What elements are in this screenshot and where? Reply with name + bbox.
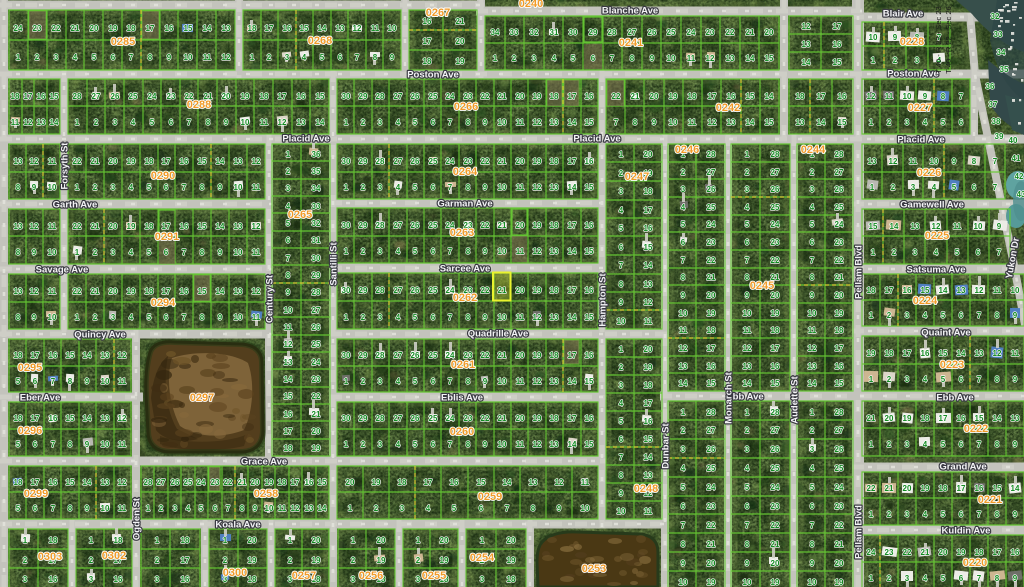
svg-text:7: 7 (977, 311, 982, 320)
svg-text:11: 11 (118, 504, 127, 513)
svg-text:16: 16 (1011, 548, 1020, 557)
svg-text:11: 11 (11, 118, 20, 127)
svg-text:22: 22 (612, 92, 621, 101)
svg-text:15: 15 (585, 313, 594, 322)
svg-text:7: 7 (997, 248, 1002, 257)
svg-text:8: 8 (16, 183, 21, 192)
svg-text:17: 17 (162, 222, 171, 231)
svg-text:1: 1 (344, 313, 349, 322)
svg-text:2: 2 (810, 168, 815, 177)
svg-text:17: 17 (957, 484, 966, 493)
svg-text:26: 26 (707, 185, 716, 194)
svg-text:23: 23 (464, 414, 473, 423)
svg-text:19: 19 (533, 286, 542, 295)
svg-text:21: 21 (885, 484, 894, 493)
svg-text:7: 7 (977, 440, 982, 449)
svg-text:5: 5 (745, 220, 750, 229)
svg-text:27: 27 (707, 168, 716, 177)
svg-text:18: 18 (550, 221, 559, 230)
svg-text:16: 16 (49, 414, 58, 423)
svg-text:13: 13 (550, 313, 559, 322)
svg-text:18: 18 (550, 92, 559, 101)
svg-text:8: 8 (206, 118, 211, 127)
svg-text:13: 13 (14, 157, 23, 166)
svg-text:6: 6 (972, 183, 977, 192)
svg-text:8: 8 (68, 377, 73, 386)
svg-text:0297: 0297 (190, 392, 214, 404)
svg-text:18: 18 (550, 286, 559, 295)
svg-text:16: 16 (181, 575, 190, 584)
svg-text:8: 8 (619, 471, 624, 480)
svg-text:15: 15 (833, 58, 842, 67)
svg-text:30: 30 (312, 254, 321, 263)
svg-text:12: 12 (291, 504, 300, 513)
svg-text:25: 25 (667, 28, 676, 37)
svg-text:16: 16 (283, 24, 292, 33)
svg-text:4: 4 (186, 504, 191, 513)
svg-text:24: 24 (312, 358, 321, 367)
svg-text:11: 11 (284, 323, 293, 332)
svg-text:0299: 0299 (24, 488, 48, 500)
svg-text:2: 2 (361, 247, 366, 256)
svg-text:7: 7 (182, 313, 187, 322)
svg-text:25: 25 (429, 157, 438, 166)
svg-text:9: 9 (85, 377, 90, 386)
svg-text:13: 13 (529, 478, 538, 487)
svg-text:5: 5 (413, 247, 418, 256)
svg-text:0267: 0267 (426, 7, 450, 19)
svg-text:4: 4 (129, 248, 134, 257)
svg-text:15: 15 (585, 247, 594, 256)
svg-text:18: 18 (550, 157, 559, 166)
svg-text:11: 11 (203, 53, 212, 62)
svg-text:19: 19 (835, 578, 844, 587)
svg-text:7: 7 (187, 118, 192, 127)
svg-text:5: 5 (16, 377, 21, 386)
svg-text:3: 3 (113, 118, 118, 127)
svg-text:19: 19 (248, 556, 257, 565)
svg-text:19: 19 (440, 556, 449, 565)
svg-text:17: 17 (833, 22, 842, 31)
svg-text:10: 10 (48, 248, 57, 257)
svg-text:17: 17 (903, 349, 912, 358)
svg-text:0256: 0256 (359, 570, 383, 582)
svg-text:16: 16 (727, 92, 736, 101)
svg-text:8: 8 (995, 574, 1000, 583)
svg-text:10: 10 (498, 183, 507, 192)
svg-text:3: 3 (378, 247, 383, 256)
svg-text:7: 7 (610, 54, 615, 63)
svg-text:25: 25 (771, 203, 780, 212)
svg-text:T 40 - R 22 - Sec 26: T 40 - R 22 - Sec 26 (944, 6, 953, 73)
svg-text:14: 14 (808, 379, 817, 388)
svg-text:20: 20 (835, 291, 844, 300)
svg-text:23: 23 (771, 502, 780, 511)
svg-text:7: 7 (977, 375, 982, 384)
svg-text:0242: 0242 (716, 102, 740, 114)
svg-text:16: 16 (585, 157, 594, 166)
svg-text:12: 12 (975, 286, 984, 295)
svg-text:14: 14 (284, 375, 293, 384)
svg-text:25: 25 (129, 92, 138, 101)
svg-text:11: 11 (516, 440, 525, 449)
svg-text:8: 8 (745, 540, 750, 549)
svg-text:0296: 0296 (18, 425, 42, 437)
svg-text:5: 5 (413, 440, 418, 449)
svg-text:14: 14 (746, 54, 755, 63)
svg-text:10: 10 (869, 33, 878, 42)
svg-text:5: 5 (16, 440, 21, 449)
svg-text:1: 1 (871, 248, 876, 257)
svg-text:11: 11 (885, 92, 894, 101)
svg-text:17: 17 (708, 92, 717, 101)
svg-text:17: 17 (278, 92, 287, 101)
svg-text:28: 28 (835, 150, 844, 159)
svg-text:15: 15 (184, 24, 193, 33)
svg-text:20: 20 (109, 157, 118, 166)
svg-text:28: 28 (835, 408, 844, 417)
svg-text:2: 2 (361, 118, 366, 127)
svg-text:14: 14 (316, 118, 325, 127)
svg-text:14: 14 (679, 379, 688, 388)
svg-text:4: 4 (131, 118, 136, 127)
svg-text:8: 8 (148, 53, 153, 62)
svg-text:11: 11 (644, 317, 653, 326)
svg-text:24: 24 (197, 478, 206, 487)
svg-text:27: 27 (394, 286, 403, 295)
svg-text:2: 2 (887, 375, 892, 384)
svg-text:1: 1 (23, 536, 28, 545)
svg-text:18: 18 (284, 444, 293, 453)
svg-text:7: 7 (505, 504, 510, 513)
svg-text:27: 27 (835, 426, 844, 435)
svg-text:11: 11 (48, 222, 57, 231)
svg-text:20: 20 (90, 24, 99, 33)
svg-text:4: 4 (932, 183, 937, 192)
svg-text:14: 14 (993, 414, 1002, 423)
svg-text:14: 14 (890, 222, 899, 231)
svg-text:28: 28 (608, 28, 617, 37)
svg-text:0288: 0288 (187, 99, 211, 111)
svg-text:18: 18 (278, 478, 287, 487)
svg-text:20: 20 (765, 28, 774, 37)
svg-text:12: 12 (533, 440, 542, 449)
svg-text:19: 19 (921, 484, 930, 493)
svg-text:13: 13 (14, 222, 23, 231)
svg-text:10: 10 (581, 504, 590, 513)
svg-text:6: 6 (745, 502, 750, 511)
svg-text:0290: 0290 (151, 170, 175, 182)
svg-text:7: 7 (355, 53, 360, 62)
svg-text:22: 22 (835, 521, 844, 530)
svg-text:3: 3 (810, 445, 815, 454)
svg-text:15: 15 (838, 118, 847, 127)
svg-text:19: 19 (312, 556, 321, 565)
svg-text:30: 30 (342, 414, 351, 423)
svg-text:28: 28 (376, 286, 385, 295)
svg-text:12: 12 (802, 22, 811, 31)
svg-text:3: 3 (89, 575, 94, 584)
svg-text:13: 13 (808, 362, 817, 371)
svg-text:4: 4 (810, 464, 815, 473)
svg-text:19: 19 (507, 556, 516, 565)
svg-text:17: 17 (568, 157, 577, 166)
svg-text:17: 17 (146, 24, 155, 33)
svg-text:29: 29 (359, 286, 368, 295)
svg-text:19: 19 (312, 444, 321, 453)
svg-text:0225: 0225 (925, 230, 949, 242)
svg-text:8: 8 (466, 440, 471, 449)
svg-text:1: 1 (869, 118, 874, 127)
svg-text:11: 11 (808, 326, 817, 335)
svg-text:15: 15 (284, 392, 293, 401)
svg-text:16: 16 (585, 286, 594, 295)
svg-text:9: 9 (32, 248, 37, 257)
svg-text:1: 1 (869, 440, 874, 449)
svg-text:26: 26 (411, 221, 420, 230)
svg-text:5: 5 (810, 483, 815, 492)
svg-text:Placid Ave: Placid Ave (897, 135, 944, 146)
svg-text:15: 15 (198, 222, 207, 231)
svg-text:12: 12 (679, 344, 688, 353)
svg-text:13: 13 (550, 183, 559, 192)
svg-text:24: 24 (446, 92, 455, 101)
svg-text:0303: 0303 (38, 551, 62, 563)
svg-text:4: 4 (923, 311, 928, 320)
svg-text:17: 17 (771, 344, 780, 353)
svg-text:6: 6 (745, 238, 750, 247)
svg-text:6: 6 (164, 313, 169, 322)
svg-text:16: 16 (37, 92, 46, 101)
svg-text:1: 1 (344, 377, 349, 386)
svg-text:12: 12 (533, 313, 542, 322)
svg-text:22: 22 (52, 24, 61, 33)
svg-text:20: 20 (771, 291, 780, 300)
svg-text:3: 3 (173, 504, 178, 513)
svg-text:17: 17 (568, 92, 577, 101)
svg-text:25: 25 (429, 351, 438, 360)
svg-text:1: 1 (155, 536, 160, 545)
svg-text:Kuldin Ave: Kuldin Ave (942, 526, 991, 537)
svg-text:2: 2 (745, 168, 750, 177)
svg-text:3: 3 (111, 313, 116, 322)
svg-text:20: 20 (312, 427, 321, 436)
svg-text:18: 18 (835, 326, 844, 335)
svg-text:14: 14 (1011, 484, 1020, 493)
svg-text:12: 12 (284, 340, 293, 349)
svg-text:20: 20 (346, 478, 355, 487)
svg-text:2: 2 (619, 363, 624, 372)
svg-text:32: 32 (312, 219, 321, 228)
svg-text:21: 21 (312, 410, 321, 419)
svg-text:27: 27 (312, 306, 321, 315)
svg-text:Dunbar St: Dunbar St (661, 422, 672, 468)
svg-text:7: 7 (51, 504, 56, 513)
svg-text:Quaint Ave: Quaint Ave (921, 328, 970, 339)
svg-text:10: 10 (101, 440, 110, 449)
svg-text:27: 27 (394, 351, 403, 360)
svg-text:14: 14 (644, 453, 653, 462)
svg-text:21: 21 (91, 157, 100, 166)
svg-text:1: 1 (619, 150, 624, 159)
svg-text:24: 24 (14, 24, 23, 33)
svg-text:17: 17 (644, 399, 653, 408)
svg-text:3: 3 (681, 445, 686, 454)
svg-text:17: 17 (568, 221, 577, 230)
svg-text:4: 4 (129, 313, 134, 322)
svg-text:12: 12 (808, 344, 817, 353)
svg-text:18: 18 (181, 536, 190, 545)
svg-text:18: 18 (14, 351, 23, 360)
svg-text:14: 14 (83, 351, 92, 360)
svg-text:1: 1 (223, 536, 228, 545)
svg-text:1: 1 (493, 54, 498, 63)
svg-text:13: 13 (297, 118, 306, 127)
svg-text:24: 24 (687, 28, 696, 37)
svg-text:0221: 0221 (978, 494, 1002, 506)
svg-text:6: 6 (959, 311, 964, 320)
svg-text:11: 11 (48, 287, 57, 296)
svg-text:7: 7 (810, 521, 815, 530)
svg-text:25: 25 (429, 92, 438, 101)
svg-text:4: 4 (129, 183, 134, 192)
svg-text:Hampton St: Hampton St (598, 273, 609, 327)
svg-text:0245: 0245 (750, 280, 774, 292)
svg-text:28: 28 (707, 408, 716, 417)
svg-text:19: 19 (127, 157, 136, 166)
svg-text:Grand Ave: Grand Ave (939, 462, 986, 473)
svg-text:18: 18 (688, 92, 697, 101)
svg-text:Placid Ave: Placid Ave (573, 134, 620, 145)
svg-text:15: 15 (300, 24, 309, 33)
svg-text:11: 11 (252, 248, 261, 257)
svg-text:30: 30 (569, 28, 578, 37)
svg-text:9: 9 (218, 183, 223, 192)
svg-text:0240: 0240 (519, 0, 543, 10)
svg-text:7: 7 (959, 92, 964, 101)
svg-text:4: 4 (923, 375, 928, 384)
svg-text:3: 3 (378, 440, 383, 449)
svg-text:22: 22 (867, 484, 876, 493)
svg-text:2: 2 (512, 54, 517, 63)
svg-text:17: 17 (568, 286, 577, 295)
svg-text:7: 7 (448, 118, 453, 127)
svg-text:5: 5 (452, 504, 457, 513)
svg-text:5: 5 (413, 118, 418, 127)
svg-text:13: 13 (727, 118, 736, 127)
svg-text:17: 17 (817, 92, 826, 101)
svg-text:20: 20 (707, 559, 716, 568)
svg-text:8: 8 (466, 118, 471, 127)
svg-text:19: 19 (533, 92, 542, 101)
svg-text:17: 17 (284, 427, 293, 436)
svg-text:9: 9 (810, 559, 815, 568)
svg-text:18: 18 (127, 24, 136, 33)
svg-text:10: 10 (903, 92, 912, 101)
svg-text:Santilli St: Santilli St (329, 242, 340, 286)
svg-text:0255: 0255 (422, 570, 446, 582)
svg-text:12: 12 (533, 118, 542, 127)
svg-text:1: 1 (480, 536, 485, 545)
svg-text:24: 24 (707, 220, 716, 229)
svg-text:4: 4 (923, 118, 928, 127)
svg-text:Sarcee Ave: Sarcee Ave (440, 264, 491, 275)
svg-text:5: 5 (955, 248, 960, 257)
svg-text:8: 8 (619, 280, 624, 289)
svg-text:4: 4 (396, 377, 401, 386)
svg-text:0223: 0223 (940, 359, 964, 371)
svg-text:6: 6 (431, 377, 436, 386)
svg-text:25: 25 (429, 221, 438, 230)
svg-text:Audette St: Audette St (790, 375, 801, 423)
svg-text:12: 12 (743, 344, 752, 353)
svg-text:8: 8 (200, 313, 205, 322)
svg-text:12: 12 (30, 222, 39, 231)
svg-text:11: 11 (687, 54, 696, 63)
svg-text:9: 9 (619, 489, 624, 498)
svg-text:Satsuma Ave: Satsuma Ave (907, 265, 966, 276)
svg-text:13: 13 (868, 157, 877, 166)
svg-text:11: 11 (118, 377, 127, 386)
svg-text:1: 1 (146, 504, 151, 513)
svg-text:17: 17 (31, 414, 40, 423)
svg-text:10: 10 (184, 53, 193, 62)
svg-text:1: 1 (348, 504, 353, 513)
svg-text:8: 8 (941, 92, 946, 101)
svg-text:22: 22 (726, 28, 735, 37)
svg-text:9: 9 (483, 183, 488, 192)
svg-text:20: 20 (516, 221, 525, 230)
svg-text:29: 29 (359, 157, 368, 166)
svg-text:5: 5 (147, 313, 152, 322)
svg-text:5: 5 (150, 118, 155, 127)
svg-text:Forsyth St: Forsyth St (60, 142, 71, 190)
svg-text:26: 26 (411, 414, 420, 423)
svg-text:15: 15 (66, 414, 75, 423)
svg-text:9: 9 (810, 291, 815, 300)
svg-text:20: 20 (109, 287, 118, 296)
svg-text:5: 5 (619, 417, 624, 426)
svg-text:3: 3 (155, 575, 160, 584)
svg-text:0246: 0246 (675, 144, 699, 156)
svg-text:11: 11 (743, 326, 752, 335)
svg-text:9: 9 (745, 559, 750, 568)
svg-text:20: 20 (939, 548, 948, 557)
svg-text:18: 18 (550, 414, 559, 423)
svg-text:19: 19 (377, 556, 386, 565)
svg-text:5: 5 (745, 483, 750, 492)
svg-text:18: 18 (49, 536, 58, 545)
svg-text:0295: 0295 (18, 362, 42, 374)
svg-text:Century St: Century St (265, 274, 276, 323)
svg-text:25: 25 (835, 203, 844, 212)
svg-text:T 40 - R 22 - Sec 23: T 40 - R 22 - Sec 23 (934, 6, 943, 73)
svg-text:22: 22 (481, 221, 490, 230)
svg-text:2: 2 (681, 426, 686, 435)
svg-text:3: 3 (400, 504, 405, 513)
svg-text:9: 9 (1013, 375, 1018, 384)
svg-text:14: 14 (83, 414, 92, 423)
svg-text:23: 23 (707, 238, 716, 247)
svg-text:22: 22 (903, 548, 912, 557)
svg-text:20: 20 (109, 222, 118, 231)
svg-text:21: 21 (91, 287, 100, 296)
svg-text:30: 30 (342, 157, 351, 166)
svg-text:0228: 0228 (900, 36, 924, 48)
svg-text:12: 12 (867, 92, 876, 101)
svg-text:16: 16 (921, 349, 930, 358)
svg-text:19: 19 (771, 309, 780, 318)
